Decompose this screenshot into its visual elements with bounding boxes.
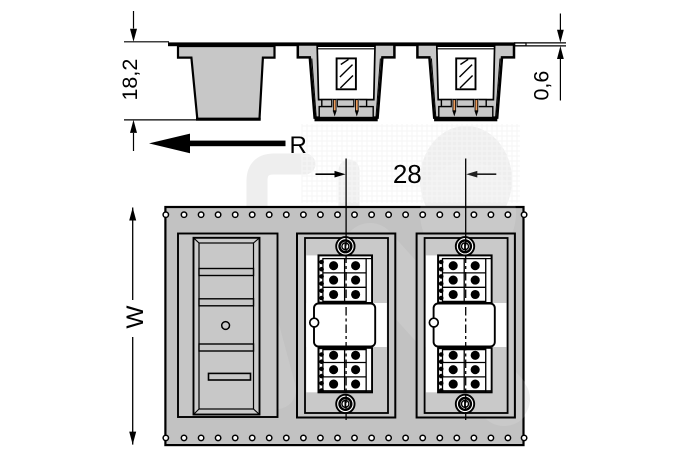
svg-text:W: W: [122, 305, 149, 329]
svg-text:18,2: 18,2: [118, 59, 142, 101]
svg-text:R: R: [290, 132, 307, 159]
svg-text:0,6: 0,6: [530, 71, 554, 101]
svg-text:28: 28: [393, 159, 422, 189]
